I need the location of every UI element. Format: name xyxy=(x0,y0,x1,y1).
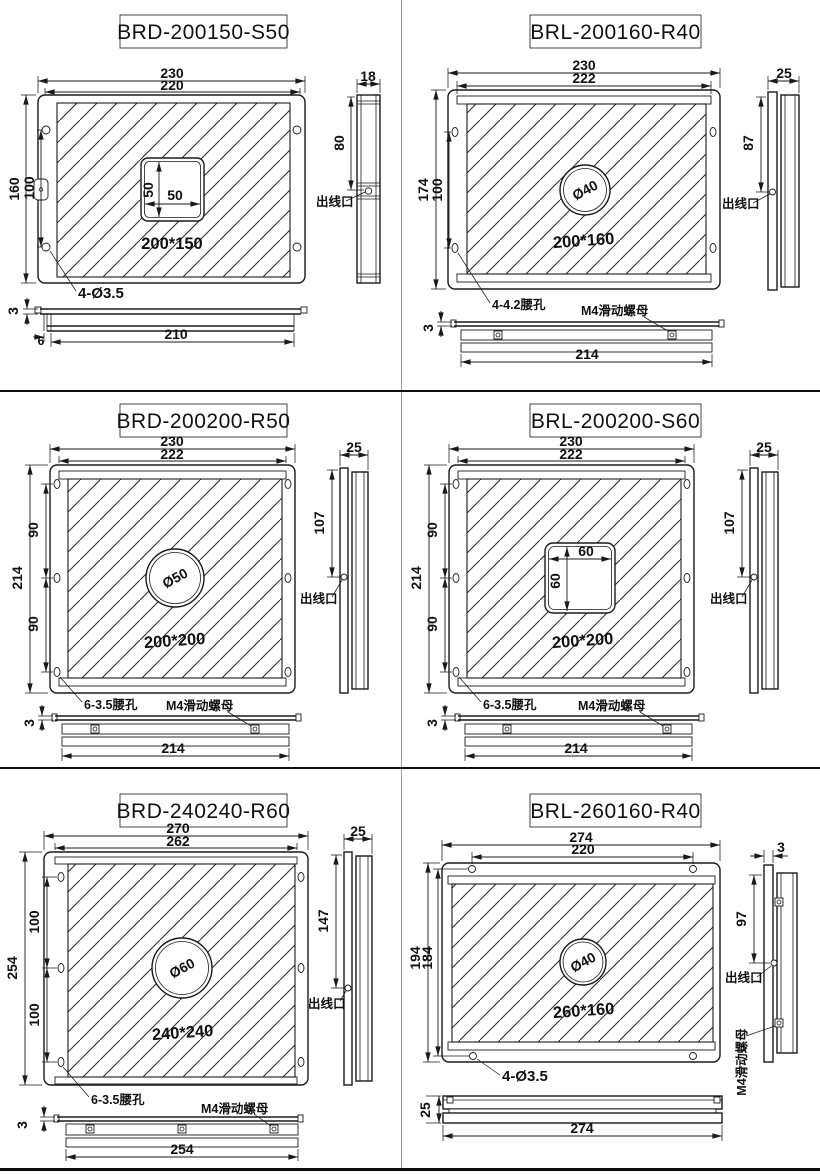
center-cutout: 60 60 xyxy=(545,543,615,613)
panel-title: BRL-200160-R40 xyxy=(530,21,700,44)
side-profile-body xyxy=(762,472,778,689)
panel-brl-260160-r40: BRL-260160-R40 Ø40 260*160 274 220 xyxy=(404,770,820,1168)
outlet-hole xyxy=(751,574,757,580)
corner-hole xyxy=(293,126,301,134)
dim-inner-width: 222 xyxy=(160,446,184,462)
side-profile-body xyxy=(352,472,368,689)
slide-nut xyxy=(270,1125,278,1133)
slot-hole xyxy=(58,1058,64,1067)
dim-seg-bottom: 100 xyxy=(26,1003,42,1027)
dim-bottom-width: 214 xyxy=(575,346,599,362)
side-view: 25 87 出线口 xyxy=(722,65,799,290)
slide-nut xyxy=(447,1097,453,1103)
nut-label: M4滑动螺母 xyxy=(581,303,649,318)
hole-callout-label: 4-Ø3.5 xyxy=(502,1068,548,1085)
corner-hole xyxy=(470,1053,477,1060)
slot-hole xyxy=(298,873,304,882)
dim-side-height: 97 xyxy=(733,911,749,927)
title-block: BRL-200200-S60 xyxy=(530,404,701,437)
dim-bottom-width: 254 xyxy=(170,1141,194,1157)
slide-nut xyxy=(503,725,511,733)
panel-title: BRL-260160-R40 xyxy=(530,800,700,823)
hole-callout-label: 4-4.2腰孔 xyxy=(492,297,546,312)
hole-callout-label: 6-3.5腰孔 xyxy=(84,697,138,712)
bottom-view: 3 M4滑动螺母 254 xyxy=(14,1101,303,1161)
slide-nut xyxy=(775,898,783,906)
slot-hole xyxy=(452,244,458,253)
dim-side-height: 147 xyxy=(315,909,331,933)
bottom-rail xyxy=(448,1042,715,1050)
nut-label: M4滑动螺母 xyxy=(578,698,646,713)
slot-hole xyxy=(710,128,716,137)
slide-nut xyxy=(775,1019,783,1027)
outlet-hole xyxy=(770,189,776,195)
bottom-view: 3 M4滑动螺母 214 xyxy=(424,698,704,761)
slot-hole xyxy=(58,873,64,882)
dim-inner-width: 220 xyxy=(571,841,595,857)
bottom-rail xyxy=(55,1077,297,1084)
rail-bar xyxy=(465,724,692,734)
title-block: BRL-260160-R40 xyxy=(530,794,701,827)
panel-title: BRD-200150-S50 xyxy=(117,21,290,44)
corner-hole xyxy=(42,126,50,134)
dim-seg-top: 100 xyxy=(26,910,42,934)
dim-inner-height: 100 xyxy=(429,178,445,202)
slot-hole xyxy=(298,964,304,973)
dim-side-top: 3 xyxy=(777,839,785,855)
dim-thickness: 3 xyxy=(420,324,436,332)
slide-nut xyxy=(668,331,676,339)
outlet-label: 出线口 xyxy=(710,591,748,606)
slot-hole xyxy=(453,668,459,677)
outlet-hole xyxy=(365,188,371,194)
outlet-label: 出线口 xyxy=(316,194,354,209)
panel-brd-240240-r60: BRD-240240-R60 Ø60 240*240 270 26 xyxy=(0,770,402,1168)
top-bar xyxy=(443,1096,722,1109)
corner-hole xyxy=(469,866,476,873)
dim-outer-height: 214 xyxy=(408,566,424,590)
bottom-border xyxy=(0,1168,820,1171)
nut-label: M4滑动螺母 xyxy=(201,1101,269,1116)
hole-callout-label: 6-3.5腰孔 xyxy=(483,697,537,712)
dim-side-width: 25 xyxy=(346,439,362,455)
slot-hole xyxy=(58,964,64,973)
front-view: 60 60 200*200 230 222 214 90 90 xyxy=(408,433,694,712)
slide-nut xyxy=(178,1125,186,1133)
corner-hole xyxy=(690,866,697,873)
side-profile-front-bar xyxy=(750,468,758,693)
dim-thickness: 25 xyxy=(417,1102,433,1118)
bottom-rail xyxy=(457,274,711,282)
bottom-view: 3 6 210 xyxy=(5,298,307,348)
drawing-sheet: BRD-200150-S50 50 50 200*150 xyxy=(0,0,820,1175)
slide-nut xyxy=(494,331,502,339)
dim-side-height: 87 xyxy=(740,135,756,151)
bottom-view: 25 274 xyxy=(417,1096,722,1141)
side-view: 18 80 出线口 xyxy=(316,68,380,283)
slot-hole xyxy=(298,1058,304,1067)
side-view: 25 107 出线口 xyxy=(300,439,368,693)
dim-side-width: 25 xyxy=(776,65,792,81)
dim-thickness: 3 xyxy=(424,719,440,727)
dim-inner-height: 100 xyxy=(21,176,37,200)
slot-hole xyxy=(285,574,291,583)
row-divider-2 xyxy=(0,767,820,770)
slide-nut xyxy=(251,725,259,733)
dim-square-h: 50 xyxy=(167,187,183,203)
corner-hole xyxy=(293,243,301,251)
title-block: BRD-200150-S50 xyxy=(117,15,290,48)
dim-inner-width: 222 xyxy=(559,446,583,462)
side-view: 25 107 出线口 xyxy=(710,439,778,693)
slide-nut xyxy=(86,1125,94,1133)
dim-bottom-width: 274 xyxy=(570,1120,594,1136)
nut-label: M4滑动螺母 xyxy=(166,698,234,713)
dim-inner-width: 220 xyxy=(160,77,184,93)
dim-seg-top: 90 xyxy=(25,522,41,538)
outlet-hole xyxy=(771,960,777,966)
slot-hole xyxy=(54,668,60,677)
title-block: BRD-240240-R60 xyxy=(117,794,291,827)
dim-side-height: 80 xyxy=(331,135,347,151)
hole-callout-label: 4-Ø3.5 xyxy=(78,285,124,302)
panel-title: BRD-200200-R50 xyxy=(117,410,291,433)
outlet-hole xyxy=(341,574,347,580)
panel-brd-200200-r50: BRD-200200-R50 Ø50 200*200 230 22 xyxy=(0,392,402,766)
front-view: 50 50 200*150 230 220 160 100 xyxy=(6,65,305,302)
slot-hole xyxy=(684,574,690,583)
bottom-view: 3 M4滑动螺母 214 xyxy=(21,698,301,761)
bottom-rail xyxy=(458,678,685,686)
row-divider-1 xyxy=(0,390,820,393)
outlet-hole xyxy=(345,985,351,991)
dim-thickness: 3 xyxy=(5,307,21,315)
slot-hole xyxy=(452,128,458,137)
side-profile-body xyxy=(356,856,372,1081)
hole-callout: 4-Ø3.5 xyxy=(477,1059,548,1085)
side-view: 3 97 出线口 M4滑动螺母 xyxy=(725,839,797,1096)
slide-nut xyxy=(663,725,671,733)
front-view: Ø40 200*160 230 222 174 100 4-4.2腰孔 xyxy=(415,57,720,312)
front-view: Ø40 260*160 274 220 194 184 4-Ø3.5 xyxy=(407,829,720,1085)
center-cutout: 50 50 xyxy=(140,158,204,221)
title-block: BRL-200160-R40 xyxy=(530,15,701,48)
front-view: Ø60 240*240 270 262 254 100 100 6- xyxy=(4,820,308,1107)
corner-hole xyxy=(690,1053,697,1060)
dim-side-width: 25 xyxy=(756,439,772,455)
vertical-divider xyxy=(401,0,403,1171)
slot-hole xyxy=(453,574,459,583)
side-view: 25 147 出线口 xyxy=(308,823,372,1085)
slot-hole xyxy=(54,574,60,583)
dim-bottom-width: 210 xyxy=(164,326,188,342)
top-rail xyxy=(458,471,685,479)
dim-side-width: 18 xyxy=(360,68,376,84)
dim-bottom-width: 214 xyxy=(161,740,185,756)
panel-brl-200200-s60: BRL-200200-S60 60 60 200*200 xyxy=(404,392,820,766)
slot-hole xyxy=(684,668,690,677)
dim-square-v: 60 xyxy=(547,573,563,589)
dim-outer-height: 160 xyxy=(6,177,22,201)
outlet-label: 出线口 xyxy=(725,970,763,985)
top-rail xyxy=(59,471,286,479)
dim-seg-top: 90 xyxy=(424,522,440,538)
side-profile-front-bar xyxy=(340,468,348,693)
outlet-label: 出线口 xyxy=(300,591,338,606)
slide-nut xyxy=(91,725,99,733)
outlet-label: 出线口 xyxy=(308,996,346,1011)
dim-square-v: 50 xyxy=(140,182,156,198)
slide-nut xyxy=(714,1097,720,1103)
dim-lip: 6 xyxy=(38,334,45,348)
dim-thickness: 3 xyxy=(21,719,37,727)
dim-bottom-width: 214 xyxy=(564,740,588,756)
side-profile-front-bar xyxy=(344,852,352,1085)
slot-hole xyxy=(285,480,291,489)
bottom-rail xyxy=(59,678,286,686)
slot-hole xyxy=(710,244,716,253)
top-rail xyxy=(457,96,711,104)
panel-title: BRL-200200-S60 xyxy=(531,410,700,433)
title-block: BRD-200200-R50 xyxy=(117,404,291,437)
front-view: Ø50 200*200 230 222 214 90 90 6-3. xyxy=(9,433,295,712)
dim-inner-width: 262 xyxy=(166,833,190,849)
top-rail xyxy=(55,857,297,864)
dim-thickness: 3 xyxy=(14,1121,30,1129)
hole-callout-label: 6-3.5腰孔 xyxy=(91,1092,145,1107)
dim-side-height: 107 xyxy=(311,511,327,535)
panel-brl-200160-r40: BRL-200160-R40 Ø40 200*160 230 222 xyxy=(404,0,820,390)
dim-side-height: 107 xyxy=(721,511,737,535)
top-rail xyxy=(448,876,715,884)
bottom-view: 3 M4滑动螺母 214 xyxy=(420,303,724,367)
dim-seg-bottom: 90 xyxy=(25,616,41,632)
area-label: 200*150 xyxy=(141,235,202,253)
panel-brd-200150-s50: BRD-200150-S50 50 50 200*150 xyxy=(0,0,402,390)
slot-hole xyxy=(54,480,60,489)
slot-hole xyxy=(453,480,459,489)
outlet-label: 出线口 xyxy=(722,196,760,211)
slot-hole xyxy=(285,668,291,677)
dim-outer-height: 254 xyxy=(4,956,20,980)
dim-side-width: 25 xyxy=(350,823,366,839)
dim-inner-width: 222 xyxy=(572,70,596,86)
dim-square-h: 60 xyxy=(578,543,594,559)
slot-hole xyxy=(684,480,690,489)
dim-inner-height: 184 xyxy=(419,946,435,970)
nut-label: M4滑动螺母 xyxy=(734,1028,749,1096)
panel-title: BRD-240240-R60 xyxy=(117,800,291,823)
dim-seg-bottom: 90 xyxy=(424,616,440,632)
corner-hole xyxy=(42,243,50,251)
side-profile-body xyxy=(781,95,799,287)
dim-outer-height: 214 xyxy=(9,566,25,590)
